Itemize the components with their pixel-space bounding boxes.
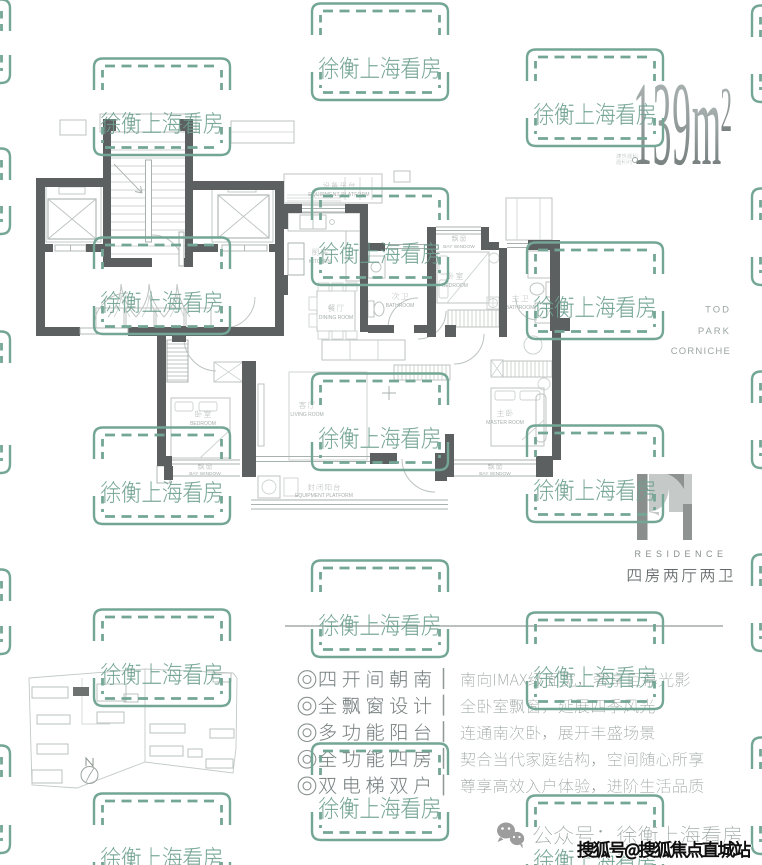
svg-text:BATHROOM: BATHROOM (506, 305, 535, 311)
svg-text:BAY WINDOW: BAY WINDOW (189, 471, 221, 477)
svg-text:CORNICHE: CORNICHE (671, 346, 731, 357)
svg-text:BEDROOM: BEDROOM (190, 421, 216, 427)
svg-text:LIVING ROOM: LIVING ROOM (290, 412, 323, 418)
svg-text:MASTER ROOM: MASTER ROOM (486, 420, 524, 426)
svg-text:BAY WINDOW: BAY WINDOW (479, 471, 511, 477)
svg-text:PARK: PARK (698, 326, 731, 337)
svg-text:RESIDENCE: RESIDENCE (634, 549, 727, 559)
svg-text:DINING ROOM: DINING ROOM (319, 315, 353, 321)
svg-text:BATHROOM: BATHROOM (386, 303, 415, 309)
svg-text:TOD: TOD (705, 305, 731, 316)
svg-text:EQUIPMENT PLATFORM: EQUIPMENT PLATFORM (295, 493, 353, 499)
svg-text:BAY WINDOW: BAY WINDOW (443, 244, 475, 250)
